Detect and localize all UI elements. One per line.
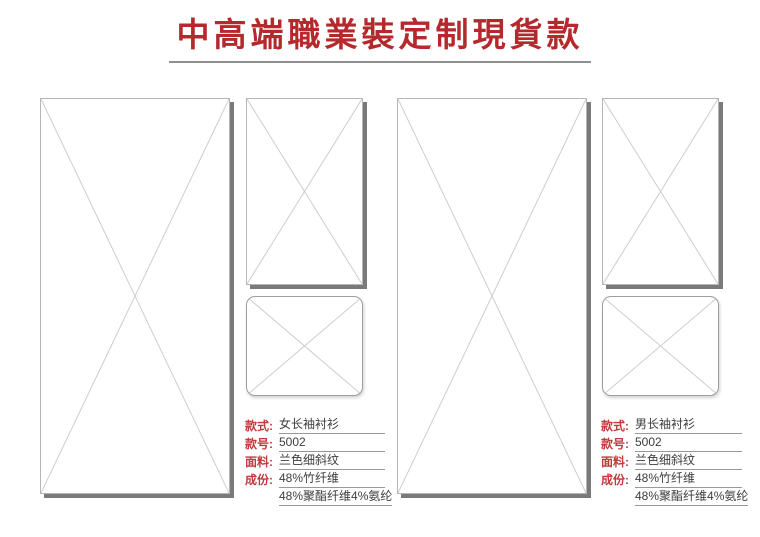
field-label: 款号: (601, 437, 635, 452)
field-value: 5002 (279, 435, 385, 452)
detail-row-fabric: 面料: 兰色细斜纹 (601, 452, 742, 470)
placeholder-cross-icon (603, 297, 718, 395)
field-label: 面料: (601, 455, 635, 470)
field-label: 款式: (245, 419, 279, 434)
image-placeholder-large-left (40, 98, 230, 494)
field-label: 成份: (245, 473, 279, 488)
placeholder-cross-icon (398, 99, 586, 493)
field-value: 男长袖衬衫 (635, 417, 742, 434)
detail-row-number: 款号: 5002 (245, 434, 385, 452)
field-label: 面料: (245, 455, 279, 470)
image-placeholder-rounded-left (246, 296, 363, 396)
placeholder-cross-icon (247, 297, 362, 395)
placeholder-cross-icon (41, 99, 229, 493)
placeholder-cross-icon (603, 99, 718, 284)
field-value: 兰色细斜纹 (279, 453, 385, 470)
page-title: 中高端職業裝定制現貨款 (169, 16, 591, 60)
field-label: 成份: (601, 473, 635, 488)
field-value: 48%聚酯纤维4%氨纶 (635, 489, 748, 506)
image-placeholder-rounded-right (602, 296, 719, 396)
product-details-right: 款式: 男长袖衬衫 款号: 5002 面料: 兰色细斜纹 成份: 48%竹纤维 … (601, 416, 742, 506)
image-placeholder-top-right (602, 98, 719, 285)
field-label: 款式: (601, 419, 635, 434)
field-value: 兰色细斜纹 (635, 453, 742, 470)
detail-row-number: 款号: 5002 (601, 434, 742, 452)
detail-row-composition-2: 48%聚酯纤维4%氨纶 (245, 488, 385, 506)
field-value: 5002 (635, 435, 742, 452)
placeholder-cross-icon (247, 99, 362, 284)
field-value: 女长袖衬衫 (279, 417, 385, 434)
detail-row-composition: 成份: 48%竹纤维 (245, 470, 385, 488)
detail-row-style: 款式: 女长袖衬衫 (245, 416, 385, 434)
image-placeholder-top-left (246, 98, 363, 285)
field-value: 48%聚酯纤维4%氨纶 (279, 489, 392, 506)
title-underline (169, 61, 591, 63)
detail-row-fabric: 面料: 兰色细斜纹 (245, 452, 385, 470)
product-details-left: 款式: 女长袖衬衫 款号: 5002 面料: 兰色细斜纹 成份: 48%竹纤维 … (245, 416, 385, 506)
field-value: 48%竹纤维 (635, 471, 742, 488)
detail-row-composition-2: 48%聚酯纤维4%氨纶 (601, 488, 742, 506)
detail-row-composition: 成份: 48%竹纤维 (601, 470, 742, 488)
field-label: 款号: (245, 437, 279, 452)
detail-row-style: 款式: 男长袖衬衫 (601, 416, 742, 434)
field-value: 48%竹纤维 (279, 471, 385, 488)
image-placeholder-large-right (397, 98, 587, 494)
catalog-page: 中高端職業裝定制現貨款 款式: 女长袖衬衫 款号: 5002 面料: 兰色细斜纹 (0, 0, 760, 537)
